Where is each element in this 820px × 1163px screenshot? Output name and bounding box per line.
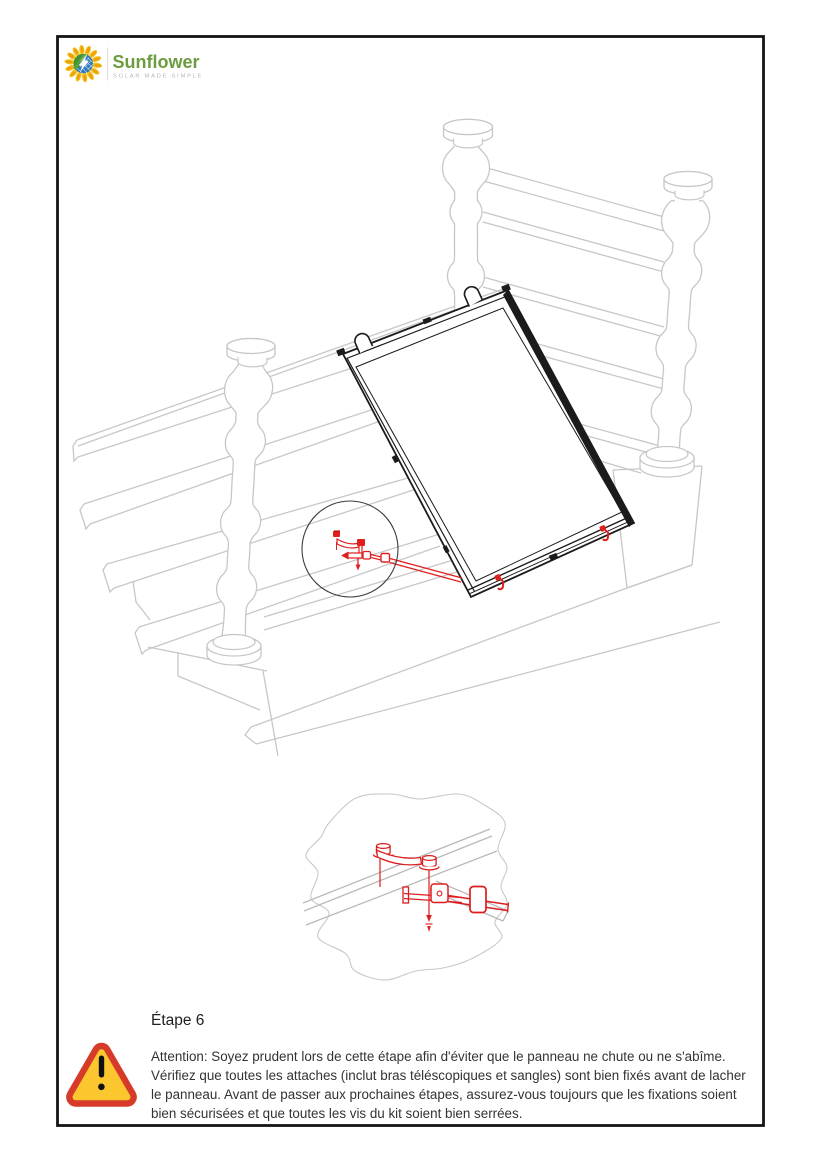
- svg-text:Sunflower: Sunflower: [113, 52, 200, 72]
- svg-text:SOLAR MADE SIMPLE: SOLAR MADE SIMPLE: [113, 74, 203, 80]
